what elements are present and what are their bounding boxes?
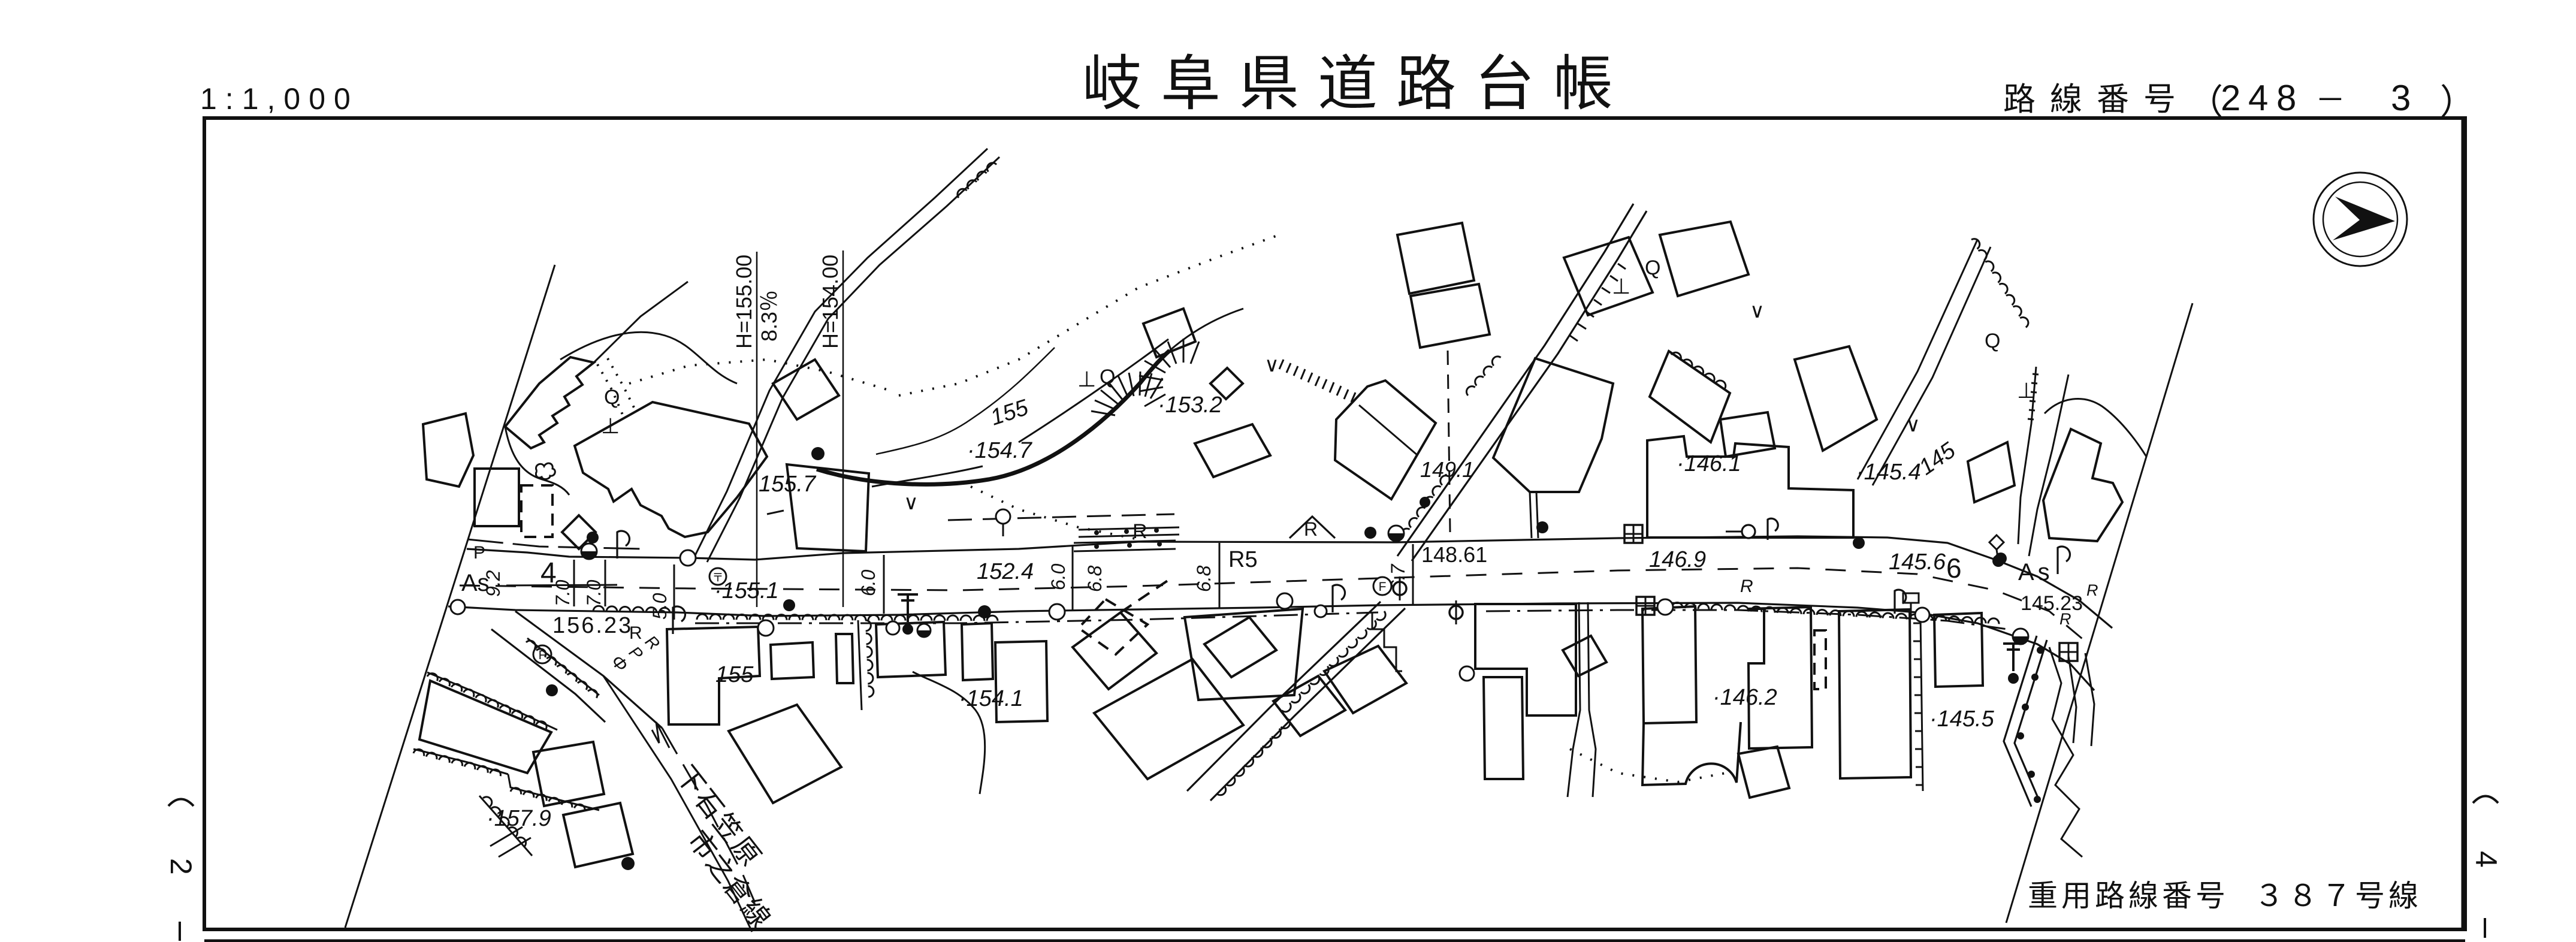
svg-text:P: P	[473, 543, 485, 563]
svg-text:7.0: 7.0	[583, 579, 605, 606]
svg-text:Q: Q	[1645, 256, 1660, 279]
svg-text:·157.9: ·157.9	[487, 806, 551, 831]
svg-text:9.2: 9.2	[482, 570, 504, 597]
svg-text:155: 155	[987, 395, 1032, 431]
svg-text:H=155.00: H=155.00	[732, 255, 756, 349]
svg-text:∨: ∨	[1905, 413, 1920, 436]
svg-text:）: ）	[2440, 83, 2475, 122]
svg-text:岐阜県道路台帳: 岐阜県道路台帳	[1082, 50, 1632, 117]
svg-text:149.1: 149.1	[1420, 457, 1474, 482]
svg-text:·145.4: ·145.4	[1856, 460, 1921, 485]
svg-text:145: 145	[1914, 437, 1961, 480]
svg-text:路線番号: 路線番号	[2003, 81, 2190, 117]
svg-text:8: 8	[2276, 78, 2296, 118]
svg-text:（: （	[2188, 83, 2223, 122]
svg-text:6.8: 6.8	[1084, 565, 1106, 592]
svg-text:As: As	[2018, 559, 2053, 585]
svg-text:2: 2	[164, 858, 198, 875]
svg-text:⊥: ⊥	[601, 413, 620, 438]
svg-text:R: R	[2059, 610, 2071, 628]
svg-text:R: R	[629, 623, 642, 643]
svg-text:1:1,000: 1:1,000	[200, 82, 359, 116]
svg-text:145.23: 145.23	[2021, 592, 2083, 615]
svg-text:F: F	[1379, 580, 1387, 594]
svg-text:H=154.00: H=154.00	[818, 255, 842, 349]
svg-text:∨: ∨	[904, 491, 919, 514]
svg-text:6.8: 6.8	[1193, 565, 1215, 592]
svg-text:F: F	[539, 648, 546, 662]
svg-text:148.61: 148.61	[1421, 542, 1487, 567]
svg-text:5.0: 5.0	[649, 593, 671, 620]
svg-text:⊥: ⊥	[2017, 378, 2036, 403]
svg-text:－: －	[2315, 83, 2345, 117]
svg-text:3: 3	[2391, 78, 2411, 118]
svg-text:R: R	[1133, 520, 1147, 543]
svg-text:145.6: 145.6	[1889, 549, 1946, 575]
svg-text:Q: Q	[604, 386, 620, 409]
svg-text:Q: Q	[1100, 366, 1115, 388]
svg-text:155: 155	[715, 662, 754, 687]
svg-text:7.0: 7.0	[552, 579, 573, 606]
svg-text:∨: ∨	[1750, 300, 1765, 322]
svg-text:·154.1: ·154.1	[959, 686, 1023, 711]
svg-text:152.4: 152.4	[977, 559, 1034, 584]
svg-text:6: 6	[1946, 552, 1962, 584]
svg-text:R: R	[2086, 581, 2098, 599]
svg-text:⊥: ⊥	[1077, 367, 1096, 391]
svg-text:∨: ∨	[1264, 354, 1279, 376]
svg-text:4: 4	[2248, 78, 2268, 118]
svg-text:2: 2	[2221, 78, 2240, 118]
svg-text:6.0: 6.0	[857, 569, 879, 596]
svg-text:155.7: 155.7	[759, 472, 817, 497]
svg-text:6.0: 6.0	[1047, 563, 1069, 590]
svg-text:·145.5: ·145.5	[1929, 707, 1995, 732]
svg-text:·146.2: ·146.2	[1713, 685, 1777, 710]
svg-text:·155.1: ·155.1	[714, 578, 779, 603]
svg-text:⊥: ⊥	[1612, 274, 1630, 298]
svg-text:146.9: 146.9	[1649, 547, 1706, 572]
svg-text:4: 4	[2469, 851, 2503, 868]
svg-text:·146.1: ·146.1	[1677, 451, 1741, 476]
svg-text:156.23: 156.23	[552, 613, 633, 638]
svg-text:R5: R5	[1228, 547, 1258, 572]
svg-text:·153.2: ·153.2	[1158, 393, 1222, 418]
svg-text:Q: Q	[1985, 330, 2000, 352]
svg-text:8.3％: 8.3％	[757, 290, 781, 342]
svg-text:R: R	[1304, 518, 1318, 540]
svg-text:重用路線番号: 重用路線番号	[2028, 879, 2229, 913]
svg-text:·154.7: ·154.7	[967, 438, 1033, 463]
svg-text:３８７号線: ３８７号線	[2254, 879, 2422, 913]
svg-text:R: R	[1740, 576, 1753, 596]
